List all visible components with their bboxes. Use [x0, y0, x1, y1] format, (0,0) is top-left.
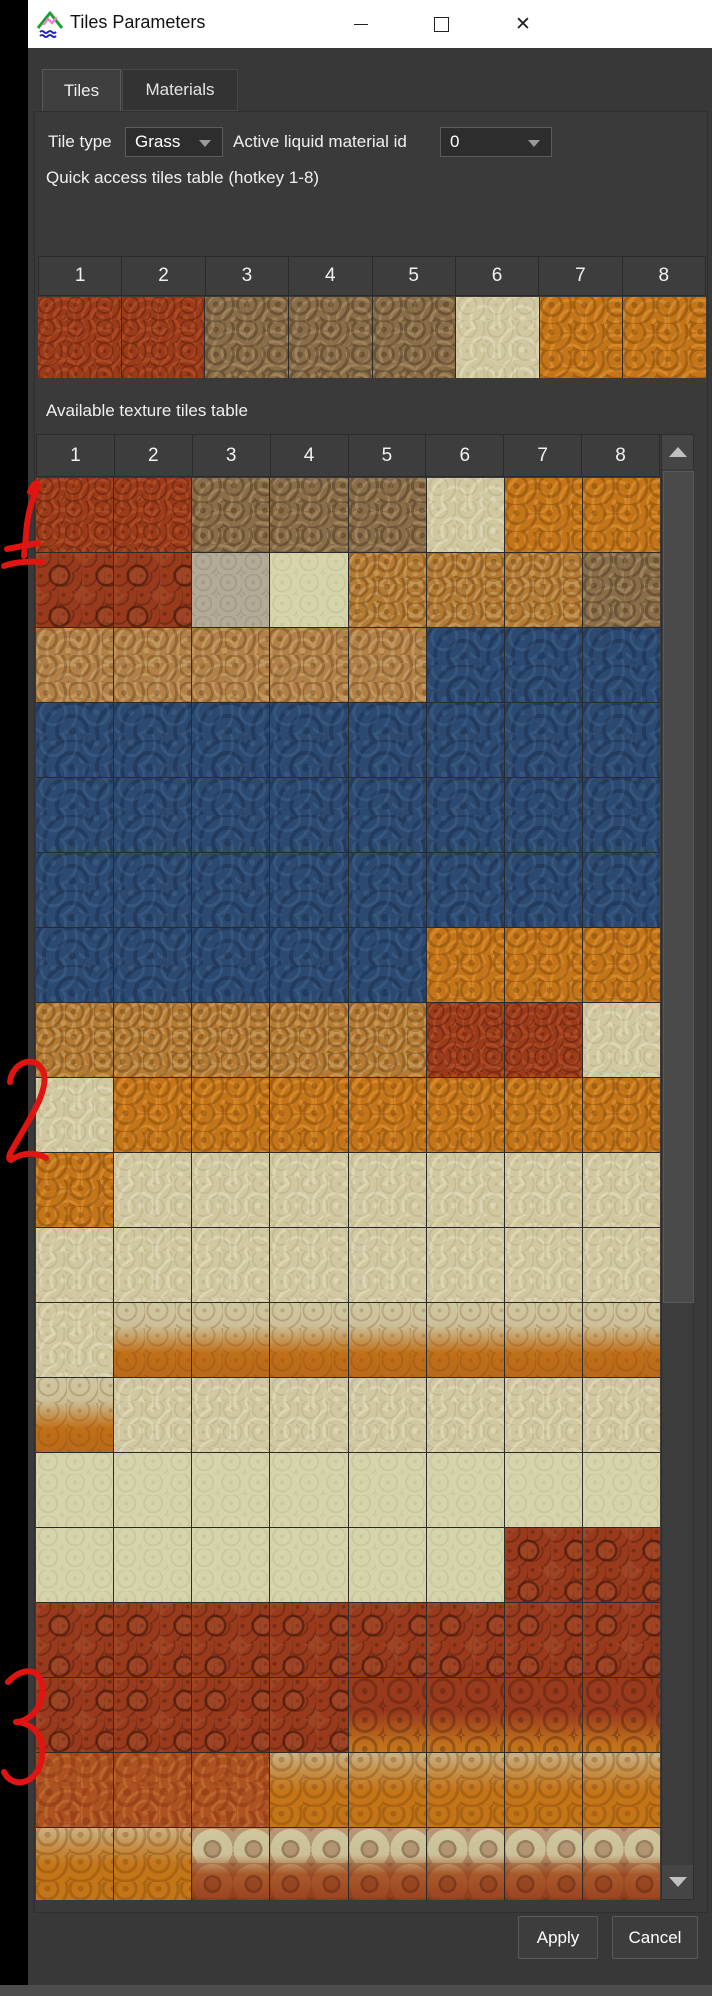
tile-cream[interactable] — [192, 1153, 269, 1227]
available-tiles-label: Available texture tiles table — [46, 401, 248, 421]
tile-orange[interactable] — [623, 297, 706, 378]
tile-cream[interactable] — [583, 1003, 660, 1077]
tile-cream2red[interactable] — [583, 1828, 660, 1900]
tile-pebble[interactable] — [36, 1603, 113, 1677]
column-header: 5 — [349, 435, 426, 476]
tile-orange[interactable] — [505, 928, 582, 1002]
tile-blue[interactable] — [36, 853, 113, 927]
tile-blue[interactable] — [427, 778, 504, 852]
quick-access-label: Quick access tiles table (hotkey 1-8) — [46, 168, 319, 188]
column-header: 3 — [193, 435, 270, 476]
arrow-up-icon — [669, 447, 687, 457]
tile-ortan[interactable] — [505, 553, 582, 627]
arrow-down-icon — [669, 1877, 687, 1887]
apply-button-label: Apply — [537, 1928, 580, 1948]
tile-pebble[interactable] — [192, 1678, 269, 1752]
tile-brown[interactable] — [192, 478, 269, 552]
column-header: 7 — [504, 435, 581, 476]
tile-cream[interactable] — [583, 1378, 660, 1452]
tile-pebble[interactable] — [427, 1603, 504, 1677]
quick-access-header-row: 12345678 — [38, 256, 706, 296]
tile-blue[interactable] — [192, 928, 269, 1002]
tile-brown[interactable] — [270, 478, 347, 552]
tile-pebble[interactable] — [270, 1678, 347, 1752]
tile-orangered[interactable] — [114, 1753, 191, 1827]
tab-tiles-label: Tiles — [64, 81, 99, 101]
tile-cream[interactable] — [505, 1378, 582, 1452]
tile-cream2orange[interactable] — [349, 1303, 426, 1377]
tile-cream[interactable] — [427, 478, 504, 552]
tile-brown[interactable] — [373, 297, 456, 378]
tile-blue[interactable] — [192, 853, 269, 927]
close-icon: ✕ — [515, 13, 531, 36]
close-button[interactable]: ✕ — [500, 0, 546, 48]
column-header: 3 — [206, 257, 288, 295]
tile-orangered[interactable] — [192, 1753, 269, 1827]
tile-green[interactable] — [114, 1453, 191, 1527]
tile-ortan[interactable] — [270, 1003, 347, 1077]
tab-materials-label: Materials — [146, 80, 215, 100]
tile-pebble[interactable] — [114, 1678, 191, 1752]
tile-cream[interactable] — [349, 1153, 426, 1227]
tile-blue[interactable] — [36, 703, 113, 777]
titlebar: Tiles Parameters ✕ — [28, 0, 712, 48]
tile-blue[interactable] — [114, 928, 191, 1002]
tile-pebble[interactable] — [583, 1528, 660, 1602]
tile-tan[interactable] — [36, 628, 113, 702]
column-header: 6 — [426, 435, 503, 476]
tile-blue[interactable] — [114, 703, 191, 777]
tile-brown[interactable] — [349, 478, 426, 552]
tile-cream2red[interactable] — [349, 1828, 426, 1900]
tile-cream[interactable] — [36, 1303, 113, 1377]
tile-orange[interactable] — [192, 1078, 269, 1152]
tile-ortan[interactable] — [192, 1003, 269, 1077]
tile-cream[interactable] — [270, 1378, 347, 1452]
tile-orangered[interactable] — [36, 1753, 113, 1827]
tile-orangespeck[interactable] — [349, 1753, 426, 1827]
tile-cream2orange[interactable] — [192, 1303, 269, 1377]
tile-blue[interactable] — [583, 703, 660, 777]
tile-orangespeck[interactable] — [505, 1753, 582, 1827]
tile-cream[interactable] — [114, 1228, 191, 1302]
tile-blue[interactable] — [349, 778, 426, 852]
tile-tan[interactable] — [270, 628, 347, 702]
tile-blue[interactable] — [583, 628, 660, 702]
tab-materials[interactable]: Materials — [122, 69, 238, 111]
tile-green[interactable] — [192, 1453, 269, 1527]
tile-ortan[interactable] — [427, 553, 504, 627]
tile-orange[interactable] — [349, 1078, 426, 1152]
tile-green[interactable] — [349, 1453, 426, 1527]
tile-ortan[interactable] — [349, 1003, 426, 1077]
tile-pebble[interactable] — [505, 1528, 582, 1602]
tile-cream[interactable] — [583, 1153, 660, 1227]
liquid-material-dropdown[interactable]: 0 — [440, 127, 552, 157]
tile-red2orange[interactable] — [583, 1678, 660, 1752]
tile-pebble[interactable] — [114, 1603, 191, 1677]
tile-green[interactable] — [505, 1453, 582, 1527]
tile-pebble[interactable] — [36, 1678, 113, 1752]
cancel-button-label: Cancel — [629, 1928, 682, 1948]
bottom-edge-strip — [0, 1985, 712, 1996]
tile-cream[interactable] — [427, 1228, 504, 1302]
maximize-button[interactable] — [418, 0, 464, 48]
tile-cream[interactable] — [349, 1378, 426, 1452]
tile-cream2red[interactable] — [427, 1828, 504, 1900]
tile-rust[interactable] — [36, 478, 113, 552]
tile-type-value: Grass — [135, 132, 180, 152]
tile-orangespeck[interactable] — [427, 1753, 504, 1827]
tile-blue[interactable] — [192, 778, 269, 852]
tile-pebble[interactable] — [114, 553, 191, 627]
tile-cream[interactable] — [427, 1153, 504, 1227]
tile-pebble[interactable] — [505, 1603, 582, 1677]
tile-orange[interactable] — [540, 297, 623, 378]
tile-pebble[interactable] — [349, 1603, 426, 1677]
tile-blue[interactable] — [270, 928, 347, 1002]
tile-cream[interactable] — [192, 1378, 269, 1452]
tile-cream[interactable] — [36, 1228, 113, 1302]
tile-orange[interactable] — [427, 1078, 504, 1152]
liquid-material-label: Active liquid material id — [233, 132, 407, 152]
tile-blue[interactable] — [270, 853, 347, 927]
tile-blue[interactable] — [192, 703, 269, 777]
tile-orangespeck[interactable] — [583, 1753, 660, 1827]
tile-brown[interactable] — [205, 297, 288, 378]
tile-blue[interactable] — [427, 628, 504, 702]
column-header: 8 — [623, 257, 705, 295]
scroll-up-button[interactable] — [662, 435, 693, 469]
tile-cream[interactable] — [505, 1228, 582, 1302]
tile-blue[interactable] — [505, 778, 582, 852]
tile-cream2orange[interactable] — [505, 1303, 582, 1377]
scrollbar-thumb[interactable] — [663, 471, 694, 1303]
tile-cream2orange[interactable] — [36, 1378, 113, 1452]
tile-cream[interactable] — [192, 1228, 269, 1302]
tile-red2orange[interactable] — [349, 1678, 426, 1752]
tile-cream2orange[interactable] — [427, 1303, 504, 1377]
tile-ortan[interactable] — [114, 1003, 191, 1077]
tile-orange[interactable] — [583, 928, 660, 1002]
tile-red2orange[interactable] — [427, 1678, 504, 1752]
tile-cream[interactable] — [36, 1078, 113, 1152]
tile-rust[interactable] — [505, 1003, 582, 1077]
tile-orange[interactable] — [36, 1153, 113, 1227]
available-header-row: 12345678 — [36, 434, 660, 477]
column-header: 8 — [582, 435, 659, 476]
scrollbar[interactable] — [661, 434, 694, 1900]
window-title: Tiles Parameters — [70, 12, 205, 33]
tile-blue[interactable] — [36, 778, 113, 852]
tile-blue[interactable] — [427, 853, 504, 927]
tile-orangespeck[interactable] — [36, 1828, 113, 1900]
tile-cream2red[interactable] — [270, 1828, 347, 1900]
tile-cream2orange[interactable] — [270, 1303, 347, 1377]
tile-cream2orange[interactable] — [583, 1303, 660, 1377]
tile-brown[interactable] — [289, 297, 372, 378]
tile-orange[interactable] — [114, 1078, 191, 1152]
tile-blue[interactable] — [349, 853, 426, 927]
tile-rust[interactable] — [122, 297, 205, 378]
tiles-parameters-window: Tiles Parameters ✕ Tiles Materials Tile … — [28, 0, 712, 1985]
tile-ortan[interactable] — [36, 1003, 113, 1077]
tile-blue[interactable] — [349, 703, 426, 777]
tile-pebble[interactable] — [192, 1603, 269, 1677]
scroll-down-button[interactable] — [662, 1865, 693, 1899]
column-header: 4 — [289, 257, 371, 295]
tile-green[interactable] — [36, 1453, 113, 1527]
tile-green[interactable] — [270, 1453, 347, 1527]
tile-blue[interactable] — [505, 628, 582, 702]
available-tiles-grid — [36, 478, 660, 1900]
tile-green[interactable] — [270, 553, 347, 627]
tile-orangespeck[interactable] — [114, 1828, 191, 1900]
tile-pebble[interactable] — [270, 1603, 347, 1677]
tile-orangespeck[interactable] — [270, 1753, 347, 1827]
tile-pebble[interactable] — [36, 553, 113, 627]
tile-cream[interactable] — [505, 1153, 582, 1227]
tile-brown[interactable] — [583, 553, 660, 627]
column-header: 1 — [37, 435, 114, 476]
minimize-button[interactable] — [338, 0, 384, 48]
tab-tiles[interactable]: Tiles — [42, 69, 121, 111]
quick-access-grid — [38, 297, 706, 378]
tile-blue[interactable] — [505, 853, 582, 927]
tile-rust[interactable] — [114, 478, 191, 552]
tile-cream[interactable] — [270, 1228, 347, 1302]
tile-blue[interactable] — [270, 703, 347, 777]
tile-blue[interactable] — [114, 778, 191, 852]
tile-cream2red[interactable] — [505, 1828, 582, 1900]
tile-cream[interactable] — [456, 297, 539, 378]
tile-tan[interactable] — [192, 628, 269, 702]
tile-type-label: Tile type — [48, 132, 112, 152]
tile-blue[interactable] — [583, 853, 660, 927]
tile-orange[interactable] — [270, 1078, 347, 1152]
tile-tan[interactable] — [349, 628, 426, 702]
app-icon — [36, 10, 64, 40]
tile-blue[interactable] — [505, 703, 582, 777]
tile-tan[interactable] — [114, 628, 191, 702]
maximize-icon — [434, 17, 449, 32]
tile-orange[interactable] — [505, 478, 582, 552]
tile-green[interactable] — [583, 1453, 660, 1527]
column-header: 6 — [456, 257, 538, 295]
tile-cream[interactable] — [270, 1153, 347, 1227]
column-header: 7 — [539, 257, 621, 295]
cancel-button[interactable]: Cancel — [612, 1916, 698, 1959]
tile-green[interactable] — [114, 1528, 191, 1602]
tile-blue[interactable] — [583, 778, 660, 852]
tile-orange[interactable] — [505, 1078, 582, 1152]
tile-orange[interactable] — [427, 928, 504, 1002]
tile-cream[interactable] — [114, 1153, 191, 1227]
tile-red2orange[interactable] — [505, 1678, 582, 1752]
tile-blue[interactable] — [349, 928, 426, 1002]
tile-green[interactable] — [270, 1528, 347, 1602]
tile-blue[interactable] — [114, 853, 191, 927]
tile-gray[interactable] — [192, 553, 269, 627]
tile-green[interactable] — [427, 1453, 504, 1527]
tile-cream[interactable] — [114, 1378, 191, 1452]
tile-cream[interactable] — [427, 1378, 504, 1452]
tile-blue[interactable] — [270, 778, 347, 852]
chevron-down-icon — [199, 140, 211, 147]
apply-button[interactable]: Apply — [518, 1916, 598, 1959]
tile-cream2red[interactable] — [192, 1828, 269, 1900]
tile-blue[interactable] — [427, 703, 504, 777]
column-header: 1 — [39, 257, 121, 295]
tile-cream[interactable] — [583, 1228, 660, 1302]
column-header: 2 — [122, 257, 204, 295]
liquid-material-value: 0 — [450, 132, 459, 152]
tile-blue[interactable] — [36, 928, 113, 1002]
column-header: 2 — [115, 435, 192, 476]
column-header: 5 — [373, 257, 455, 295]
tile-green[interactable] — [36, 1528, 113, 1602]
tile-orange[interactable] — [583, 1078, 660, 1152]
tile-green[interactable] — [192, 1528, 269, 1602]
tile-orange[interactable] — [583, 478, 660, 552]
chevron-down-icon — [528, 140, 540, 147]
column-header: 4 — [271, 435, 348, 476]
tile-rust[interactable] — [38, 297, 121, 378]
minimize-icon — [354, 24, 368, 25]
tile-rust[interactable] — [427, 1003, 504, 1077]
tile-ortan[interactable] — [349, 553, 426, 627]
tile-pebble[interactable] — [583, 1603, 660, 1677]
tile-green[interactable] — [349, 1528, 426, 1602]
tile-cream2orange[interactable] — [114, 1303, 191, 1377]
tile-green[interactable] — [427, 1528, 504, 1602]
tile-type-dropdown[interactable]: Grass — [125, 127, 223, 157]
tile-cream[interactable] — [349, 1228, 426, 1302]
